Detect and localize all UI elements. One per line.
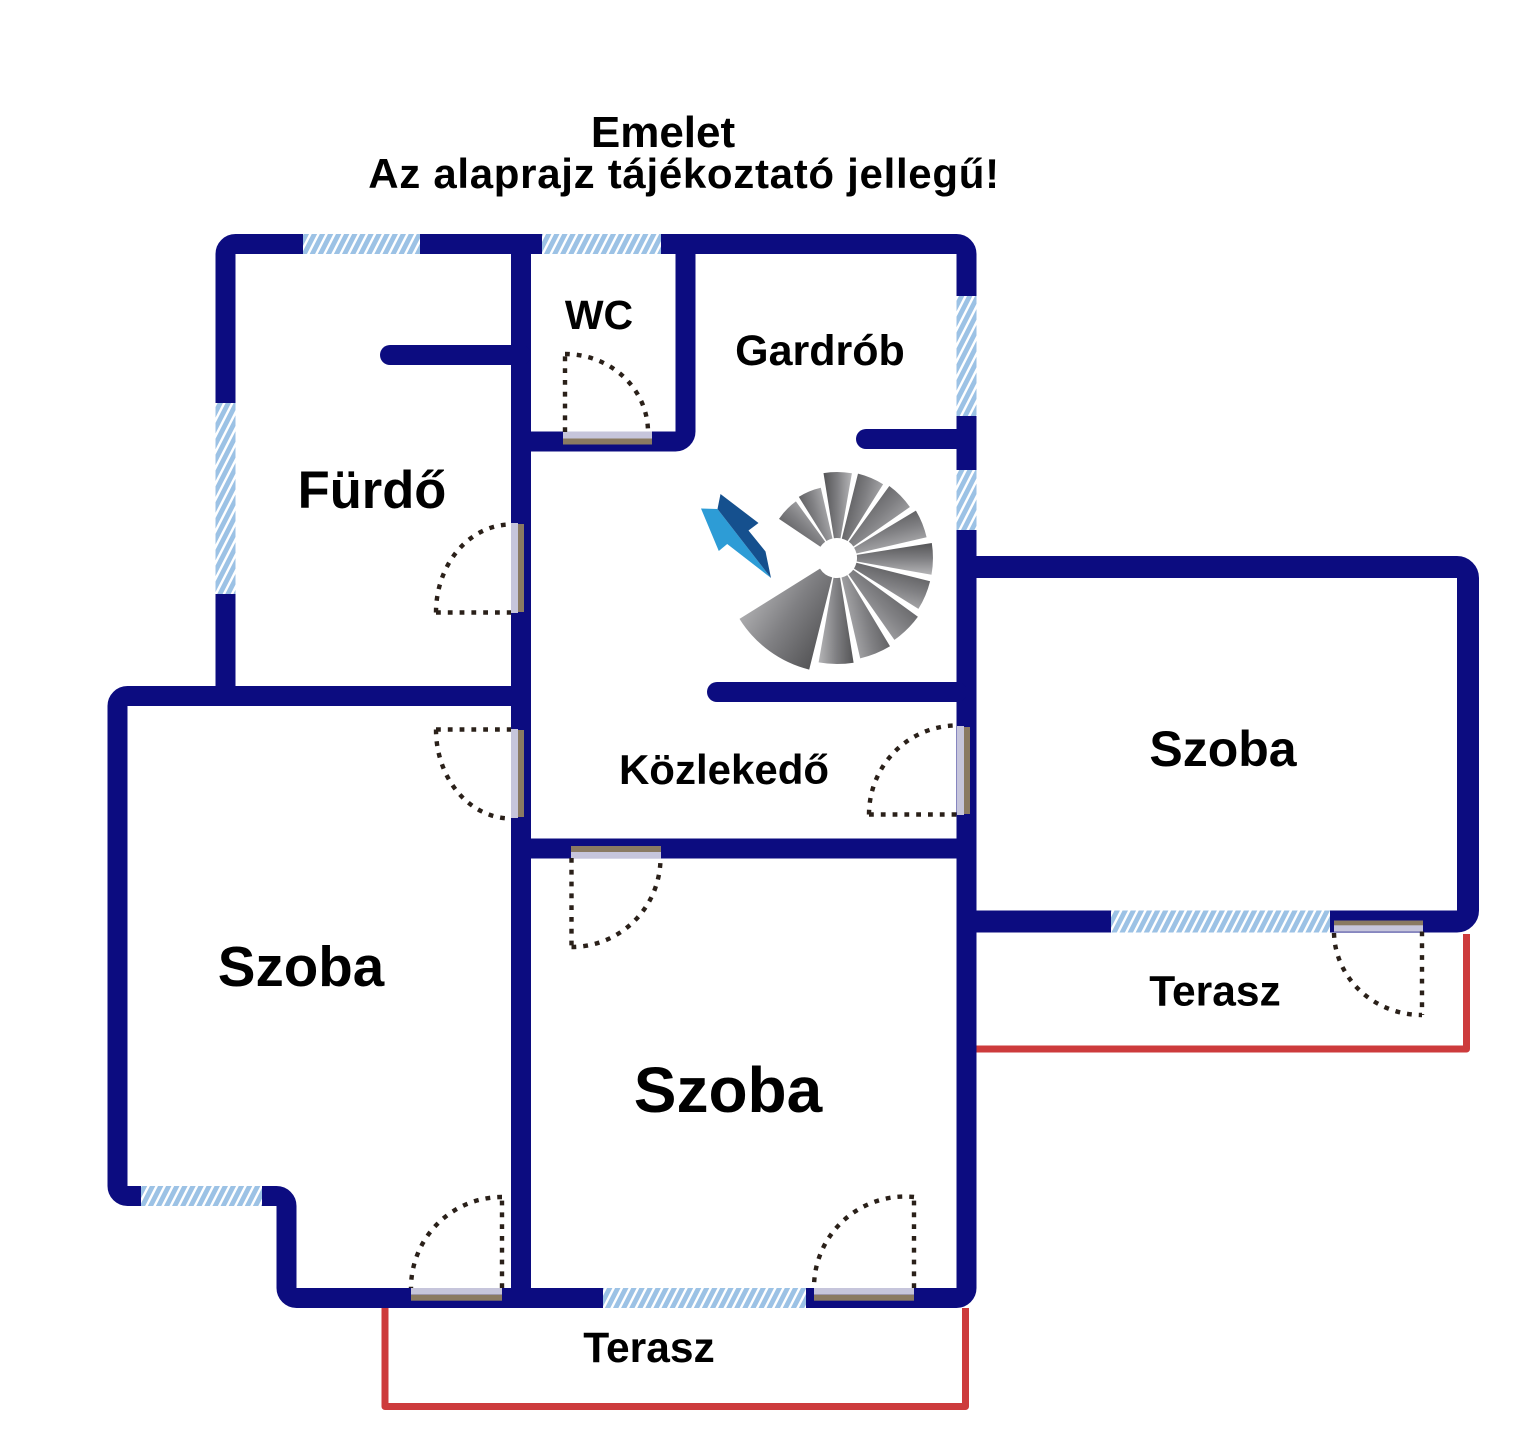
- svg-text:Terasz: Terasz: [1149, 969, 1281, 1016]
- svg-text:Szoba: Szoba: [634, 1054, 823, 1126]
- svg-text:Szoba: Szoba: [218, 935, 385, 998]
- svg-text:Szoba: Szoba: [1149, 721, 1297, 777]
- svg-text:Gardrób: Gardrób: [735, 327, 905, 375]
- svg-text:Terasz: Terasz: [583, 1325, 715, 1372]
- svg-text:Az alaprajz tájékoztató jelleg: Az alaprajz tájékoztató jellegű!: [368, 150, 1000, 197]
- svg-text:Fürdő: Fürdő: [298, 461, 447, 520]
- svg-text:Közlekedő: Közlekedő: [619, 746, 829, 793]
- svg-text:WC: WC: [565, 292, 633, 338]
